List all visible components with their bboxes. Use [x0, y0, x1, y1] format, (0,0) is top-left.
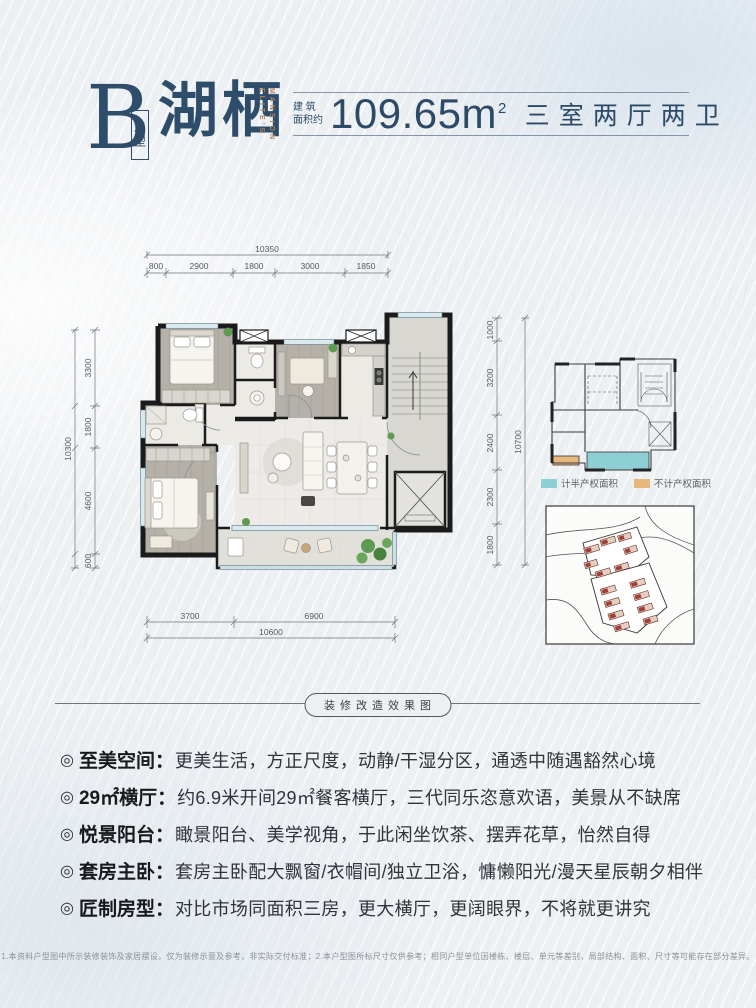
legend-swatch-tan: [634, 479, 650, 488]
list-item: ◎ 悦景阳台 ： 瞰景阳台、美学视角，于此闲坐饮茶、摆弄花草，怡然自得: [60, 815, 720, 852]
area-schematic: [535, 352, 703, 480]
disclaimer: 1.本资料户型图中所示装修装饰及家居摆设，仅为装修示意及参考，非实际交付标准；2…: [0, 951, 756, 962]
legend-item-half: 计半产权面积: [541, 476, 618, 490]
list-item: ◎ 至美空间 ： 更美生活，方正尺度，动静/干湿分区，通透中随遇豁然心境: [60, 741, 720, 778]
feature-label: 套房主卧: [79, 857, 155, 884]
half-area-zone: [587, 452, 649, 470]
dim-label: 1000: [485, 320, 495, 339]
dim-label: 2900: [190, 261, 209, 271]
feature-label: 悦景阳台: [79, 820, 155, 847]
feature-colon: ：: [155, 746, 174, 773]
feature-text: 瞰景阳台、美学视角，于此闲坐饮茶、摆弄花草，怡然自得: [175, 821, 651, 847]
feature-colon: ：: [155, 894, 174, 921]
legend-swatch-teal: [541, 479, 557, 488]
rooms-label: 三室两厅两卫: [525, 96, 729, 132]
legend-label: 计半产权面积: [561, 476, 618, 490]
unit-type-box: 户型: [131, 110, 149, 160]
dim-label: 10300: [63, 437, 73, 461]
dim-label: 10350: [255, 244, 279, 254]
schematic-details: [588, 364, 671, 446]
feature-text: 对比市场同面积三房，更大横厅，更阔眼界，不将就更讲究: [175, 895, 651, 921]
no-area-zone: [553, 456, 579, 465]
section-divider: 装修改造效果图: [55, 693, 700, 715]
unit-type-label: 户型: [132, 120, 149, 150]
feature-colon: ：: [157, 783, 176, 810]
feature-text: 约6.9米开间29㎡餐客横厅，三代同乐恣意欢语，美景从不缺席: [177, 784, 681, 810]
feature-colon: ：: [155, 820, 174, 847]
area-superscript: 2: [498, 100, 507, 117]
dim-label: 3700: [181, 611, 200, 621]
dim-label: 2400: [485, 433, 495, 452]
list-item: ◎ 套房主卧 ： 套房主卧配大飘窗/衣帽间/独立卫浴，慵懒阳光/漫天星辰朝夕相伴: [60, 852, 720, 889]
dim-label: 800: [149, 261, 163, 271]
dim-label: 3200: [485, 368, 495, 387]
dim-label: 10700: [513, 430, 523, 454]
dim-label: 3000: [301, 261, 320, 271]
feature-text: 更美生活，方正尺度，动静/干湿分区，通透中随遇豁然心境: [175, 747, 656, 773]
area-value: 109.65m2: [330, 90, 506, 138]
dim-label: 3300: [83, 358, 93, 377]
bullet-icon: ◎: [60, 898, 74, 918]
dim-label: 1850: [357, 261, 376, 271]
divider-pill: 装修改造效果图: [304, 693, 451, 717]
feature-list: ◎ 至美空间 ： 更美生活，方正尺度，动静/干湿分区，通透中随遇豁然心境 ◎ 2…: [60, 741, 720, 926]
bed-1: [170, 330, 214, 384]
feature-label: 至美空间: [79, 746, 155, 773]
poster-page: B 户型 湖栖 ELITE'S MANSION 建 筑 面积约 109.65m2…: [0, 0, 756, 1008]
area-label: 建 筑 面积约: [293, 101, 323, 127]
dim-label: 2300: [485, 487, 495, 506]
dim-label: 10600: [259, 627, 283, 637]
dim-label: 6900: [305, 611, 324, 621]
dim-label: 1800: [485, 535, 495, 554]
feature-colon: ：: [155, 857, 174, 884]
dim-label: 600: [83, 554, 93, 568]
list-item: ◎ 29㎡横厅 ： 约6.9米开间29㎡餐客横厅，三代同乐恣意欢语，美景从不缺席: [60, 778, 720, 815]
area-block: 建 筑 面积约 109.65m2 三室两厅两卫: [293, 92, 689, 136]
bullet-icon: ◎: [60, 824, 74, 844]
floor-plan: 10350 800 2900 1800 3000 1850 10300 3300…: [50, 240, 570, 660]
list-item: ◎ 匠制房型 ： 对比市场同面积三房，更大横厅，更阔眼界，不将就更讲究: [60, 889, 720, 926]
brand-en-line2: MANSION: [268, 88, 275, 158]
dim-label: 4600: [83, 491, 93, 510]
feature-label: 29㎡横厅: [79, 783, 157, 810]
site-plan: [545, 505, 695, 645]
brand-en-line1: ELITE'S: [258, 88, 265, 158]
dim-label: 1800: [245, 261, 264, 271]
feature-text: 套房主卧配大飘窗/衣帽间/独立卫浴，慵懒阳光/漫天星辰朝夕相伴: [175, 858, 703, 884]
bullet-icon: ◎: [60, 750, 74, 770]
dim-label: 1800: [83, 417, 93, 436]
bullet-icon: ◎: [60, 787, 74, 807]
feature-label: 匠制房型: [79, 894, 155, 921]
legend-label: 不计产权面积: [654, 476, 711, 490]
legend: 计半产权面积 不计产权面积: [541, 476, 711, 490]
brand-en: ELITE'S MANSION: [258, 88, 275, 158]
bullet-icon: ◎: [60, 861, 74, 881]
legend-item-none: 不计产权面积: [634, 476, 711, 490]
dining-table: [327, 442, 377, 494]
